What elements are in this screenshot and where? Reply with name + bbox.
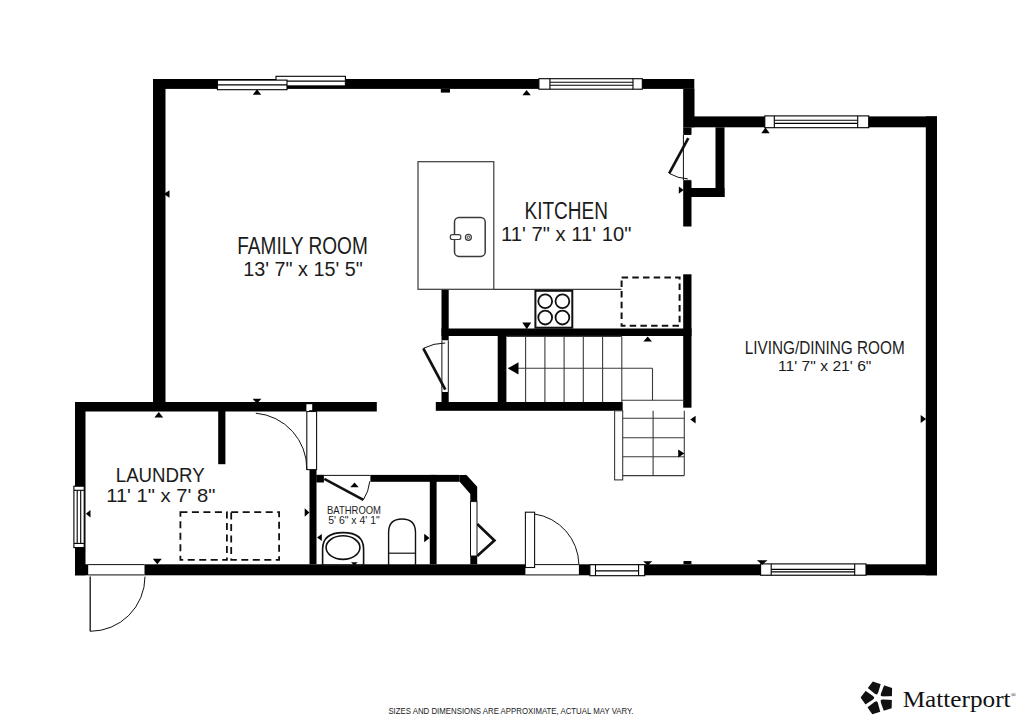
svg-text:FAMILY ROOM: FAMILY ROOM xyxy=(237,233,368,259)
svg-text:11' 7" x 21' 6": 11' 7" x 21' 6" xyxy=(778,357,871,374)
svg-text:LAUNDRY: LAUNDRY xyxy=(116,463,205,486)
svg-text:13' 7" x 15' 5": 13' 7" x 15' 5" xyxy=(243,257,363,280)
svg-text:KITCHEN: KITCHEN xyxy=(524,198,608,224)
svg-text:®: ® xyxy=(1011,691,1017,699)
svg-text:11' 7" x 11' 10": 11' 7" x 11' 10" xyxy=(501,222,631,245)
svg-text:LIVING/DINING ROOM: LIVING/DINING ROOM xyxy=(745,338,905,358)
svg-text:SIZES AND DIMENSIONS ARE APPRO: SIZES AND DIMENSIONS ARE APPROXIMATE, AC… xyxy=(388,706,633,716)
svg-text:Matterport: Matterport xyxy=(903,687,1012,712)
svg-text:5' 6" x 4' 1": 5' 6" x 4' 1" xyxy=(328,514,380,526)
svg-text:11' 1" x 7' 8": 11' 1" x 7' 8" xyxy=(106,485,215,506)
